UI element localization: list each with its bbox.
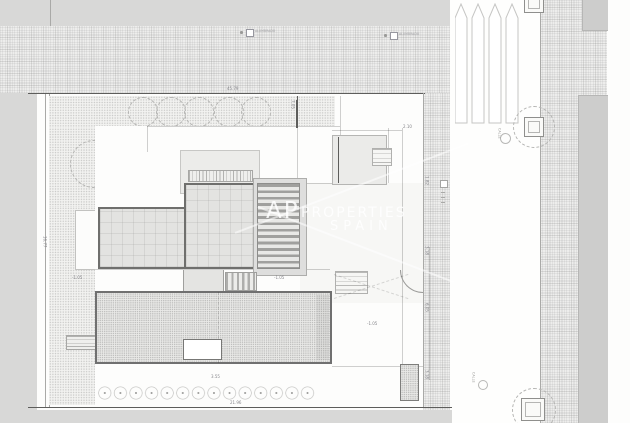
rear-planter-box: [400, 364, 419, 401]
survey-tick-1: [441, 192, 445, 193]
top-road-surface: [0, 0, 450, 26]
dim-right-1: 1.82: [424, 176, 428, 185]
survey-tick-3: [441, 202, 445, 203]
survey-point-box: [440, 180, 448, 188]
dim-right-chain-line: [429, 247, 430, 380]
street-lamp-circle-lower: [478, 380, 488, 390]
left-neighbour-strip: [0, 93, 37, 423]
dim-left-height: 16.77: [42, 236, 46, 247]
garage-wall-line: [338, 137, 339, 183]
dim-gate-line: [332, 130, 402, 131]
pergola-louvres: [257, 183, 300, 269]
dim-gate: 2.10: [403, 125, 412, 129]
street-tree-planter-2: [524, 117, 544, 137]
level-court-mid: -1.05: [274, 276, 284, 280]
site-plan-canvas: CALLE CALLE ALUMBRADO ALUMBRADO: [0, 0, 630, 423]
neighbour-building-right: [578, 95, 610, 423]
parapet-line-top: [147, 126, 340, 127]
top-road-joint-line: [50, 0, 51, 26]
street-tree-planter-3: [521, 398, 545, 421]
dim-top-width: 45.79: [227, 87, 238, 91]
garden-tree-row-3: [184, 97, 214, 127]
marker-box-icon: [246, 29, 254, 37]
dim-bottom-width: 21.96: [230, 401, 241, 405]
top-sidewalk-paving: [0, 26, 450, 93]
utility-marker-1: ALUMBRADO: [240, 29, 300, 37]
utility-marker-label: ALUMBRADO: [255, 30, 275, 34]
left-boundary-line-outer: [45, 93, 46, 407]
main-roof-left: [98, 207, 186, 269]
rear-hedge-row: [97, 385, 315, 401]
level-garden-left: -1.05: [72, 276, 82, 280]
utility-marker-2: ALUMBRADO: [384, 32, 444, 40]
marker-box-icon: [390, 32, 398, 40]
front-property-line: [28, 93, 425, 94]
watermark-monogram: AP: [266, 198, 300, 224]
marker-dot-icon: [240, 31, 243, 34]
garden-tree-row-4: [214, 97, 244, 127]
pedestrian-crossing-markings: [455, 3, 519, 127]
bottom-road-surface: [0, 410, 452, 423]
parapet-line-left: [147, 126, 148, 152]
garden-tree-row-2: [156, 97, 186, 127]
neighbour-building-topright: [582, 0, 609, 31]
main-roof-right: [184, 183, 255, 269]
street-name-upper: CALLE: [497, 128, 501, 139]
dim-tree-line: [296, 100, 297, 128]
rear-property-line: [28, 407, 452, 408]
dim-plant-row: 3.55: [211, 375, 220, 379]
skylight: [183, 339, 222, 360]
right-page-margin: [608, 0, 630, 423]
street-name-lower: CALLE: [471, 372, 475, 383]
right-road-edge-line: [540, 0, 541, 423]
dim-garden-line: [297, 96, 298, 128]
dim-garden-depth: 7.05: [290, 100, 294, 109]
watermark-sub: SPAIN: [330, 219, 393, 234]
garage-stair-glyph: [372, 148, 392, 166]
main-entrance-stair: [188, 170, 253, 182]
marker-dot-icon: [384, 34, 387, 37]
secondary-louvre: [225, 272, 257, 291]
yard-line-v: [402, 128, 403, 366]
garden-tree-row-5: [241, 97, 271, 127]
garden-tree-row-1: [128, 97, 158, 127]
survey-tick-2: [441, 197, 445, 198]
utility-marker-label: ALUMBRADO: [399, 33, 419, 37]
link-corridor-roof: [183, 270, 224, 291]
street-tree-planter-1: [524, 0, 544, 13]
level-courtyard: -1.05: [367, 322, 377, 326]
lower-roof-gravel-strip: [316, 295, 329, 360]
